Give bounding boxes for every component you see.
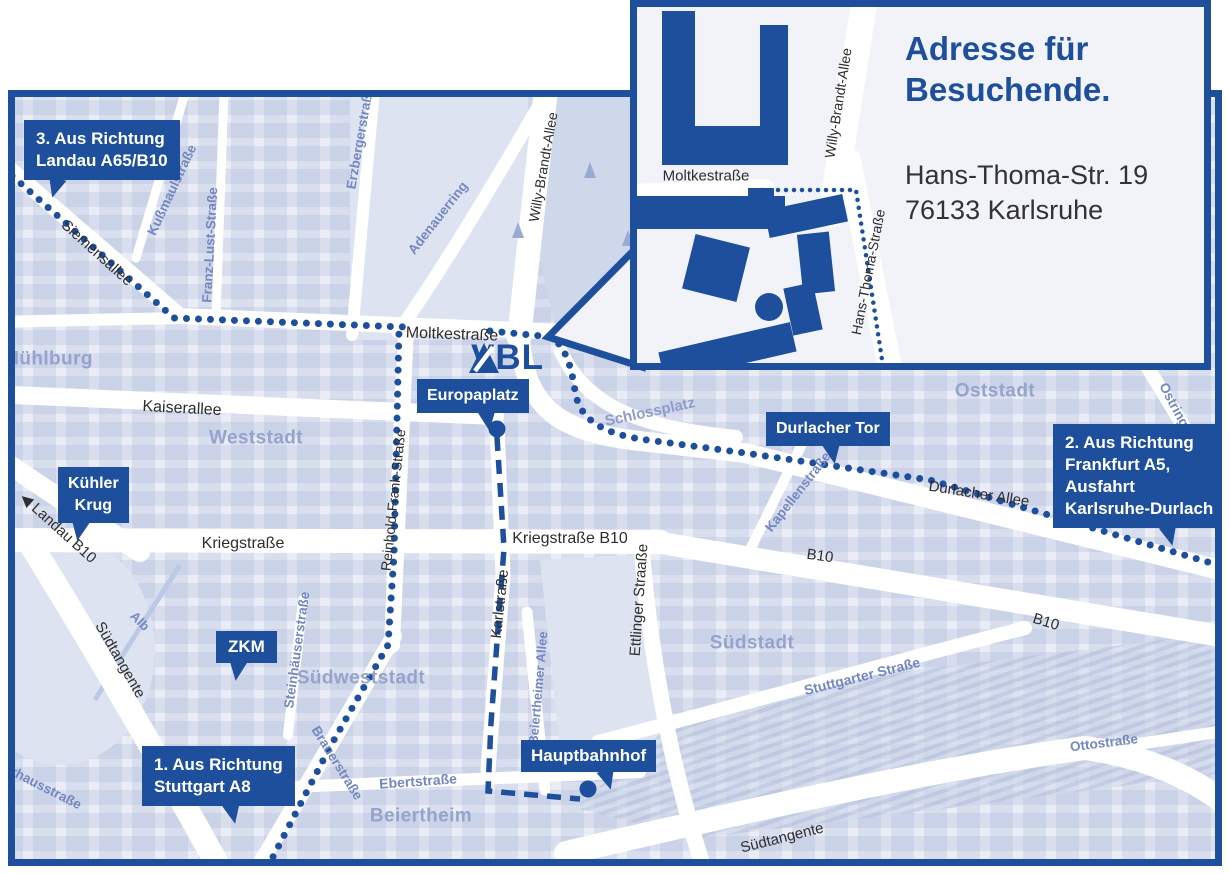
inset-street-moltkestrasse: Moltkestraße xyxy=(663,169,750,184)
inset-panel: Moltkestraße Willy-Brandt-Allee Hans-Tho… xyxy=(630,0,1211,370)
inset-address: Hans-Thoma-Str. 19 76133 Karlsruhe xyxy=(905,158,1148,228)
map-stage: Mühlburg Weststadt Oststadt Südstadt Süd… xyxy=(0,0,1230,874)
inset-title: Adresse für Besuchende. xyxy=(905,28,1110,110)
